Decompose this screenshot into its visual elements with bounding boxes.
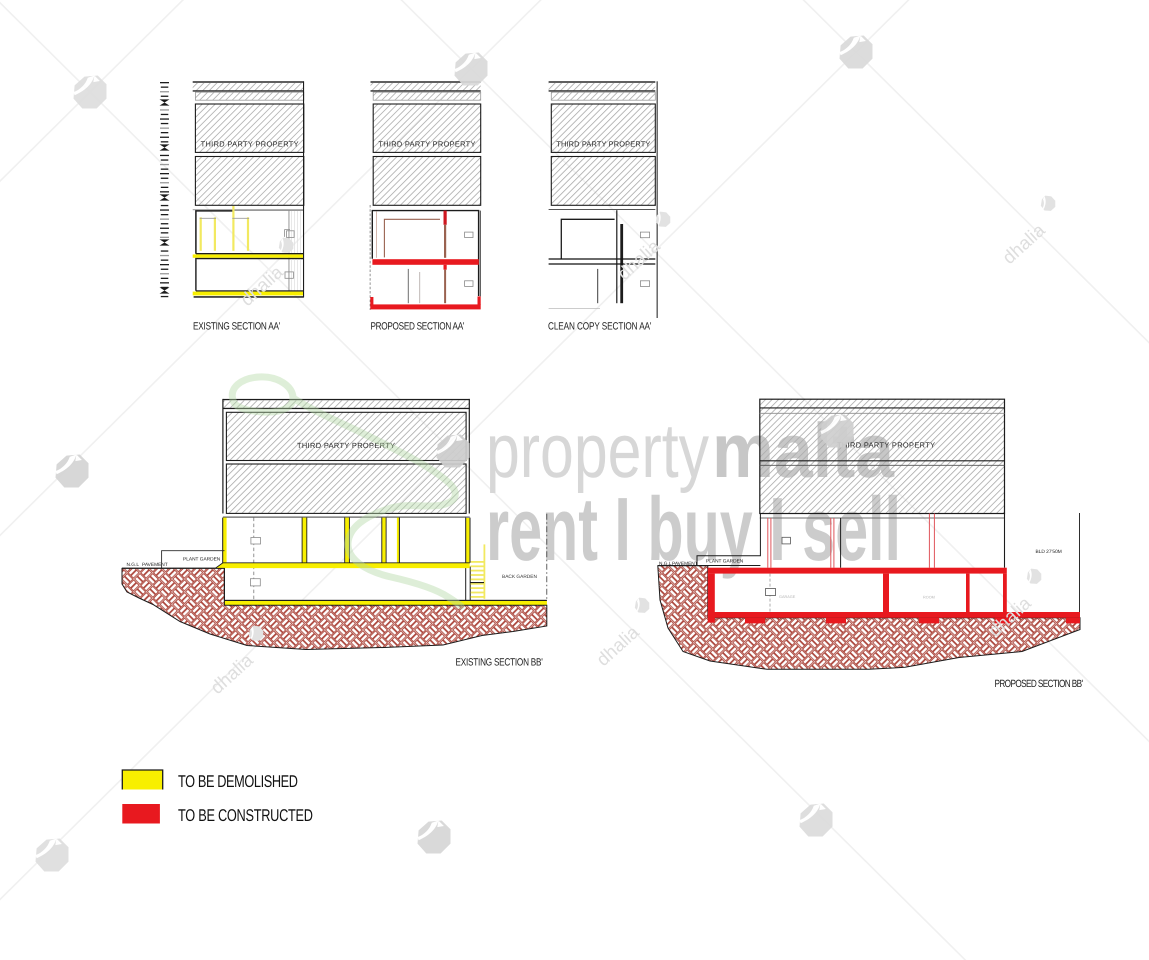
svg-text:TO BE CONSTRUCTED: TO BE CONSTRUCTED — [178, 806, 313, 825]
svg-text:PAVEMENT: PAVEMENT — [142, 562, 168, 568]
svg-text:PLANT GARDEN: PLANT GARDEN — [183, 557, 221, 563]
svg-text:CLEAN COPY SECTION AA': CLEAN COPY SECTION AA' — [548, 321, 652, 333]
svg-text:THIRD PARTY PROPERTY: THIRD PARTY PROPERTY — [837, 441, 935, 450]
svg-text:THIRD PARTY PROPERTY: THIRD PARTY PROPERTY — [378, 140, 475, 149]
svg-text:TO BE DEMOLISHED: TO BE DEMOLISHED — [178, 772, 298, 791]
svg-text:N.G.L: N.G.L — [127, 562, 140, 568]
svg-text:THIRD PARTY PROPERTY: THIRD PARTY PROPERTY — [201, 140, 299, 149]
svg-text:BACK GARDEN: BACK GARDEN — [502, 574, 537, 580]
svg-text:PLANT GARDEN: PLANT GARDEN — [706, 559, 744, 565]
svg-text:EXISTING SECTION BB': EXISTING SECTION BB' — [456, 657, 543, 669]
svg-text:BLD 27'50M: BLD 27'50M — [1036, 549, 1062, 555]
svg-text:EXISTING SECTION AA': EXISTING SECTION AA' — [193, 321, 280, 333]
svg-text:THIRD PARTY PROPERTY: THIRD PARTY PROPERTY — [556, 140, 650, 149]
svg-text:PROPOSED SECTION AA': PROPOSED SECTION AA' — [371, 321, 465, 333]
svg-text:PROPOSED SECTION BB': PROPOSED SECTION BB' — [995, 678, 1084, 690]
svg-text:ROOM: ROOM — [923, 596, 935, 600]
svg-text:GARAGE: GARAGE — [779, 595, 796, 599]
